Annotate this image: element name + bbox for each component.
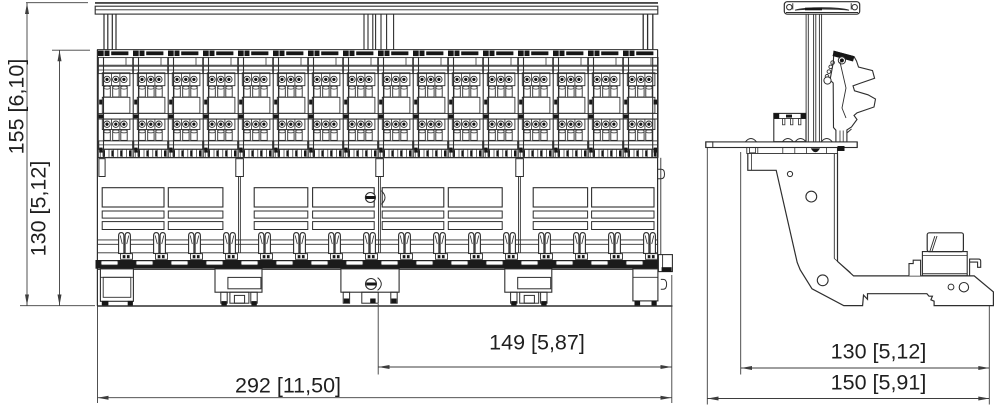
svg-text:149 [5,87]: 149 [5,87] — [489, 331, 585, 355]
svg-text:130 [5,12]: 130 [5,12] — [831, 340, 927, 364]
svg-text:130 [5,12]: 130 [5,12] — [27, 161, 51, 257]
svg-text:155 [6,10]: 155 [6,10] — [5, 59, 29, 155]
svg-text:292 [11,50]: 292 [11,50] — [235, 374, 341, 398]
svg-text:150 [5,91]: 150 [5,91] — [831, 371, 927, 395]
